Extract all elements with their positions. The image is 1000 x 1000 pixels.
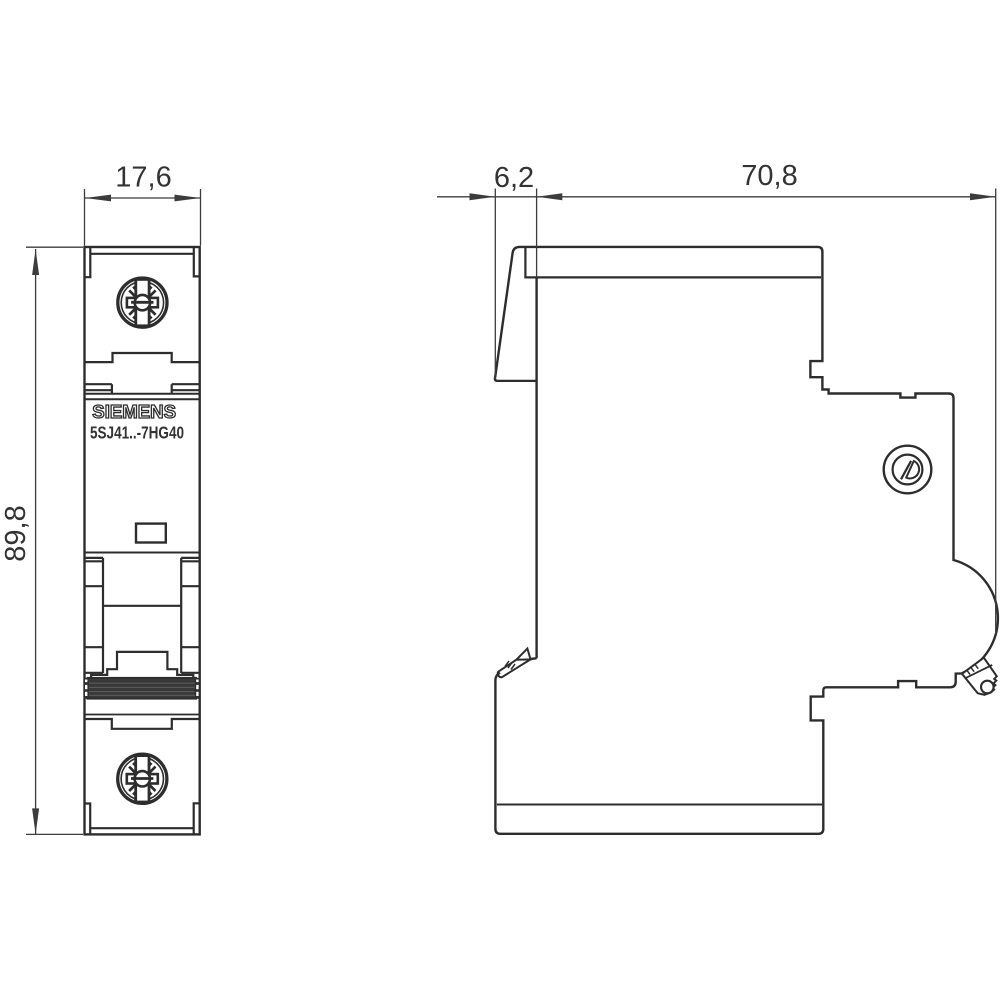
- svg-text:6,2: 6,2: [494, 162, 534, 194]
- svg-text:5SJ41..-7HG40: 5SJ41..-7HG40: [90, 422, 184, 442]
- svg-text:70,8: 70,8: [741, 160, 797, 192]
- svg-text:89,8: 89,8: [0, 505, 32, 561]
- svg-text:SIEMENS: SIEMENS: [92, 401, 176, 422]
- svg-text:17,6: 17,6: [115, 162, 171, 194]
